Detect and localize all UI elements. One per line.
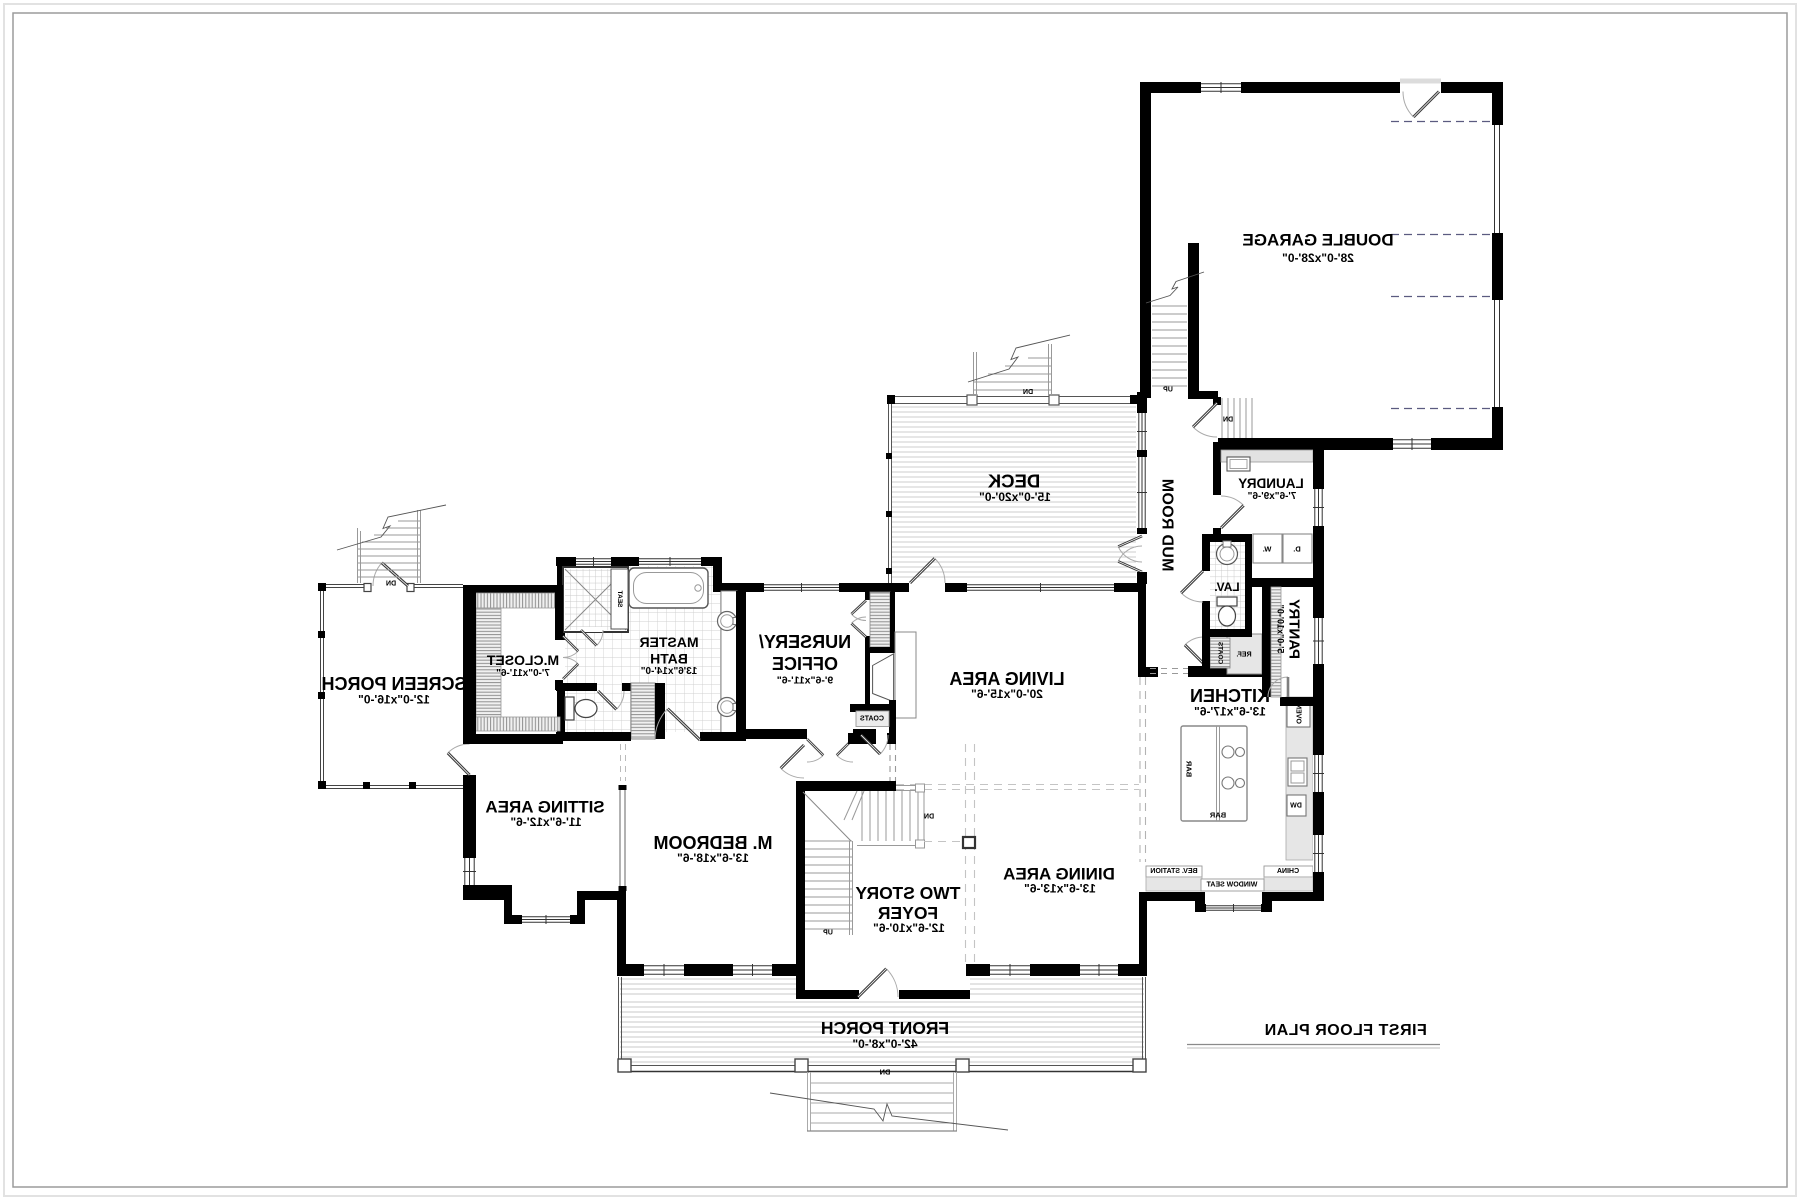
svg-text:MUD ROOM: MUD ROOM	[1159, 478, 1176, 571]
svg-text:12'-6"x10'-6": 12'-6"x10'-6"	[873, 921, 945, 935]
svg-text:OVEN: OVEN	[1295, 704, 1302, 724]
svg-text:13'6"x14'-0": 13'6"x14'-0"	[640, 666, 697, 677]
svg-text:12'-0"x16'-0": 12'-0"x16'-0"	[358, 693, 430, 707]
svg-text:DN: DN	[1223, 417, 1233, 424]
svg-text:COATS: COATS	[1217, 641, 1224, 664]
svg-text:DN: DN	[386, 581, 396, 588]
svg-text:FRONT PORCH: FRONT PORCH	[821, 1018, 949, 1038]
svg-text:LAV.: LAV.	[1214, 580, 1239, 594]
svg-text:REF.: REF.	[1236, 652, 1251, 659]
svg-text:UP: UP	[1163, 387, 1173, 394]
svg-text:SCREEN PORCH: SCREEN PORCH	[321, 674, 466, 694]
svg-text:DN: DN	[1023, 389, 1033, 396]
svg-text:M.CLOSET: M.CLOSET	[486, 652, 559, 668]
svg-text:5'-0"x10'-0": 5'-0"x10'-0"	[1276, 605, 1286, 654]
svg-text:M. BEDROOM: M. BEDROOM	[654, 833, 773, 853]
svg-text:LIVING AREA: LIVING AREA	[949, 669, 1064, 689]
svg-text:DN: DN	[924, 814, 934, 821]
svg-text:13'-6"x17'-6": 13'-6"x17'-6"	[1194, 705, 1266, 719]
svg-text:CHINA: CHINA	[1277, 868, 1299, 875]
svg-text:KITCHEN: KITCHEN	[1190, 686, 1270, 706]
svg-text:TWO STORY: TWO STORY	[855, 883, 960, 903]
svg-text:SEAT: SEAT	[616, 591, 623, 608]
svg-text:9'-6"x11'-6": 9'-6"x11'-6"	[777, 675, 833, 687]
svg-text:OFFICE: OFFICE	[772, 654, 838, 674]
svg-text:20'-0"x15'-6": 20'-0"x15'-6"	[971, 687, 1043, 701]
svg-text:DW: DW	[1290, 803, 1302, 810]
svg-text:7'-6"x9'-6": 7'-6"x9'-6"	[1247, 491, 1296, 502]
svg-text:SITTING AREA: SITTING AREA	[485, 798, 604, 817]
svg-text:DECK: DECK	[987, 471, 1040, 492]
svg-text:PANTRY: PANTRY	[1286, 599, 1303, 659]
svg-text:7'-0"x11'-6": 7'-0"x11'-6"	[496, 668, 550, 679]
svg-text:COATS: COATS	[860, 716, 884, 723]
svg-text:BATH: BATH	[650, 651, 688, 667]
svg-text:MASTER: MASTER	[639, 634, 698, 650]
svg-text:WINDOW SEAT: WINDOW SEAT	[1206, 882, 1258, 889]
svg-text:UP: UP	[823, 930, 833, 937]
svg-text:BAR: BAR	[1209, 811, 1226, 820]
svg-text:13'-6"x13'-6": 13'-6"x13'-6"	[1024, 882, 1096, 896]
svg-text:42'-0"x8'-0": 42'-0"x8'-0"	[852, 1037, 917, 1051]
svg-text:28'-0"x28'-0": 28'-0"x28'-0"	[1282, 251, 1354, 265]
svg-text:W.: W.	[1263, 545, 1272, 554]
svg-text:D.: D.	[1293, 545, 1301, 554]
svg-text:NURSERY/: NURSERY/	[759, 632, 851, 652]
svg-text:FIRST FLOOR PLAN: FIRST FLOOR PLAN	[1264, 1022, 1427, 1039]
svg-text:BEV. STATION: BEV. STATION	[1150, 868, 1197, 875]
svg-text:FOYER: FOYER	[878, 903, 939, 923]
svg-text:BAR: BAR	[1185, 760, 1194, 777]
svg-text:LAUNDRY: LAUNDRY	[1238, 476, 1304, 491]
svg-text:DN: DN	[880, 1068, 891, 1077]
svg-text:11'-6"x12'-6": 11'-6"x12'-6"	[510, 815, 581, 829]
svg-text:13'-6"x18'-6": 13'-6"x18'-6"	[677, 851, 749, 865]
svg-text:15'-0"x20'-0": 15'-0"x20'-0"	[979, 490, 1051, 504]
svg-text:DOUBLE GARAGE: DOUBLE GARAGE	[1242, 231, 1393, 250]
